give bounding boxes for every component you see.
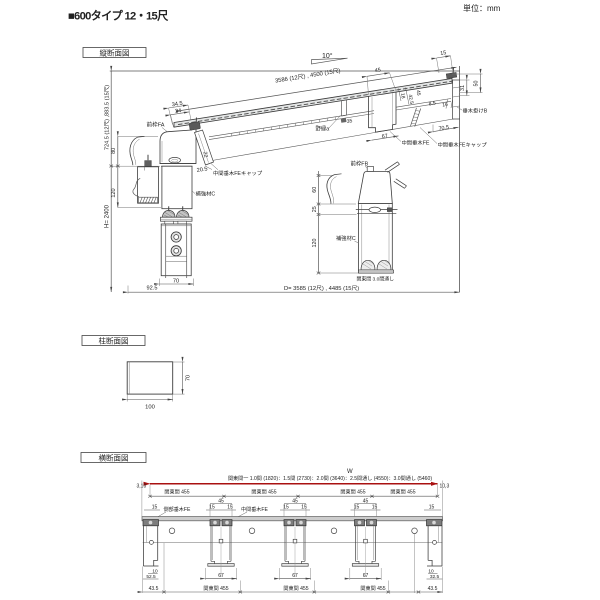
svg-text:3586 (12尺) , 4500 (15尺): 3586 (12尺) , 4500 (15尺) — [275, 67, 341, 84]
svg-text:45: 45 — [363, 498, 369, 504]
svg-text:H= 2400: H= 2400 — [105, 204, 111, 228]
svg-text:22: 22 — [202, 151, 209, 158]
svg-text:67: 67 — [218, 573, 224, 579]
svg-text:45: 45 — [292, 498, 298, 504]
svg-text:18: 18 — [399, 93, 406, 100]
svg-text:関東間 455: 関東間 455 — [283, 585, 308, 592]
svg-text:70: 70 — [186, 375, 192, 381]
svg-text:前枠FA: 前枠FA — [147, 121, 165, 129]
svg-text:34.5: 34.5 — [171, 101, 183, 109]
svg-text:関東間 3.0間通し: 関東間 3.0間通し — [357, 276, 395, 283]
svg-text:垂木掛けB: 垂木掛けB — [463, 107, 488, 115]
svg-text:42.5: 42.5 — [407, 94, 414, 105]
svg-text:関東間 455: 関東間 455 — [164, 488, 189, 495]
svg-text:中間垂木FE: 中間垂木FE — [402, 139, 430, 147]
svg-text:8.5: 8.5 — [428, 100, 436, 107]
svg-text:野縁a: 野縁a — [316, 125, 330, 133]
svg-text:16: 16 — [442, 102, 449, 109]
svg-text:中間垂木FEキャップ: 中間垂木FEキャップ — [213, 169, 263, 177]
svg-text:側部垂木FE: 側部垂木FE — [164, 506, 191, 513]
svg-text:60: 60 — [312, 187, 318, 193]
svg-text:関東間 455: 関東間 455 — [251, 488, 276, 495]
svg-text:単位：mm: 単位：mm — [463, 3, 501, 13]
svg-text:45: 45 — [374, 67, 381, 74]
svg-text:柱断面図: 柱断面図 — [99, 336, 129, 346]
svg-text:34: 34 — [175, 108, 182, 115]
svg-text:31: 31 — [460, 85, 466, 91]
svg-text:67: 67 — [381, 133, 388, 140]
svg-text:15: 15 — [152, 505, 158, 511]
svg-text:補強材C: 補強材C — [336, 234, 356, 242]
svg-text:中間垂木FEキャップ: 中間垂木FEキャップ — [438, 141, 488, 149]
svg-text:20.5: 20.5 — [196, 166, 208, 174]
svg-text:10,3: 10,3 — [440, 484, 450, 490]
svg-text:120: 120 — [312, 239, 318, 248]
svg-text:関東間一 1.0間 (1820)：1.5間 (2730)：2: 関東間一 1.0間 (1820)：1.5間 (2730)：2.0間 (3640)… — [228, 475, 432, 482]
svg-text:92.5: 92.5 — [147, 286, 158, 292]
svg-text:横断面図: 横断面図 — [99, 453, 129, 463]
svg-text:補強材C: 補強材C — [196, 190, 216, 198]
svg-text:関東間 455: 関東間 455 — [340, 488, 365, 495]
svg-text:縦断面図: 縦断面図 — [100, 48, 130, 58]
svg-text:120: 120 — [111, 188, 117, 197]
svg-text:70: 70 — [173, 279, 179, 285]
svg-text:関東間 455: 関東間 455 — [390, 488, 415, 495]
svg-text:35: 35 — [346, 118, 353, 125]
svg-text:43.5: 43.5 — [149, 586, 159, 592]
svg-text:100: 100 — [145, 405, 155, 411]
svg-text:中間垂木FE: 中間垂木FE — [241, 506, 268, 513]
svg-text:D= 3585 (12尺) , 4485 (15尺): D= 3585 (12尺) , 4485 (15尺) — [284, 285, 359, 292]
svg-text:67: 67 — [292, 573, 298, 579]
svg-text:50: 50 — [474, 81, 480, 87]
svg-text:15: 15 — [429, 505, 435, 511]
svg-text:45: 45 — [415, 90, 422, 97]
svg-text:15: 15 — [440, 50, 447, 57]
svg-text:前枠FB: 前枠FB — [351, 160, 369, 168]
svg-text:67: 67 — [363, 573, 369, 579]
svg-text:W: W — [347, 469, 353, 475]
svg-text:43.5: 43.5 — [428, 586, 438, 592]
svg-text:■600タイプ 12・15尺: ■600タイプ 12・15尺 — [68, 9, 169, 23]
svg-text:45: 45 — [218, 498, 224, 504]
svg-text:3,10: 3,10 — [137, 484, 147, 490]
svg-text:724.5 (12尺) ,883.5 (15尺): 724.5 (12尺) ,883.5 (15尺) — [104, 85, 111, 150]
svg-text:関東間 455: 関東間 455 — [203, 585, 228, 592]
svg-text:25: 25 — [312, 206, 318, 212]
svg-text:関東間 455: 関東間 455 — [360, 585, 385, 592]
svg-text:80: 80 — [111, 148, 117, 154]
svg-text:70.5: 70.5 — [438, 125, 449, 133]
